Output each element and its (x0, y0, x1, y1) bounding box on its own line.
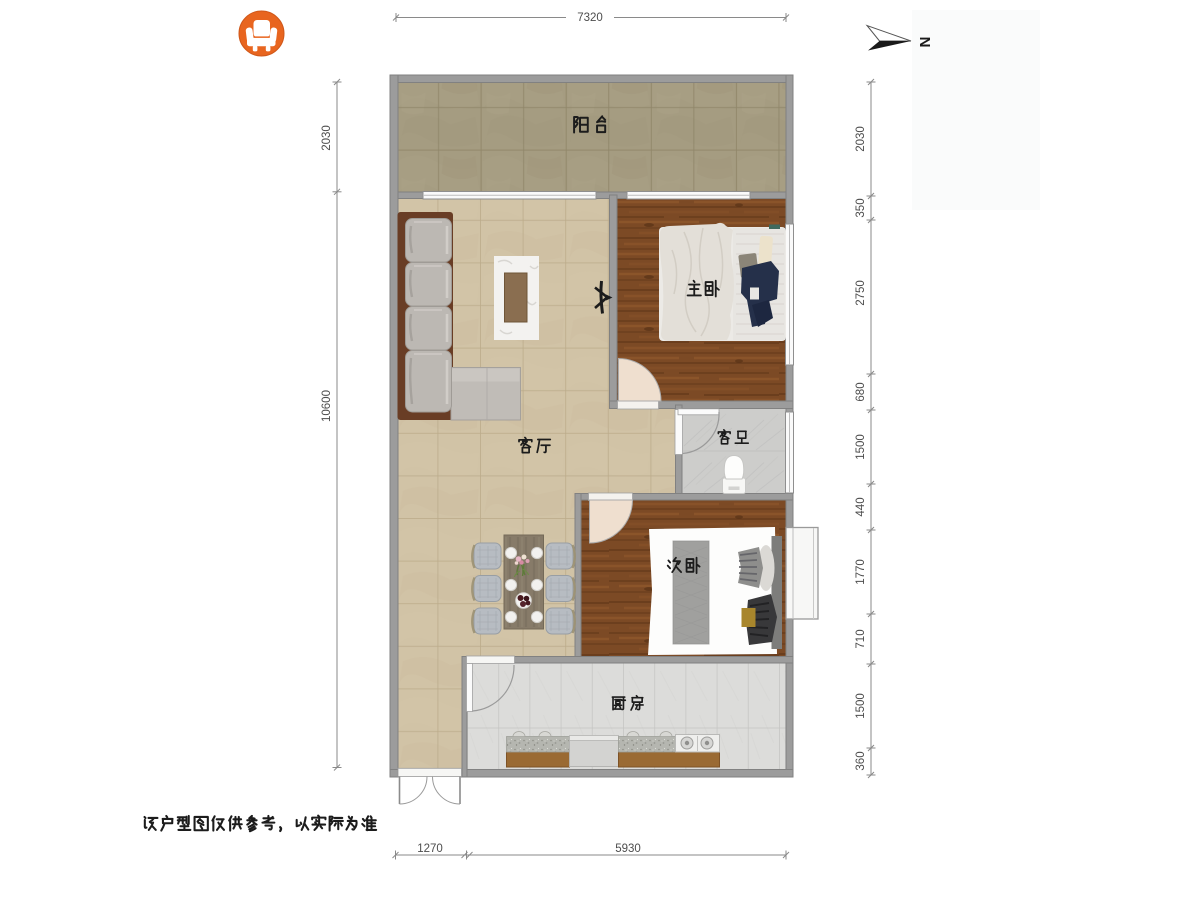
svg-text:7320: 7320 (577, 12, 603, 24)
svg-text:2030: 2030 (855, 126, 867, 152)
svg-text:N: N (916, 37, 933, 48)
svg-text:710: 710 (855, 629, 867, 648)
svg-text:5930: 5930 (615, 843, 641, 855)
svg-text:2030: 2030 (321, 125, 333, 151)
svg-text:360: 360 (855, 751, 867, 770)
svg-text:1500: 1500 (855, 434, 867, 460)
svg-text:1500: 1500 (855, 693, 867, 719)
svg-text:10600: 10600 (321, 390, 333, 422)
svg-text:2750: 2750 (855, 280, 867, 306)
svg-text:1270: 1270 (417, 843, 443, 855)
svg-text:350: 350 (855, 198, 867, 217)
svg-text:440: 440 (855, 497, 867, 516)
svg-text:1770: 1770 (855, 559, 867, 585)
svg-text:680: 680 (855, 382, 867, 401)
